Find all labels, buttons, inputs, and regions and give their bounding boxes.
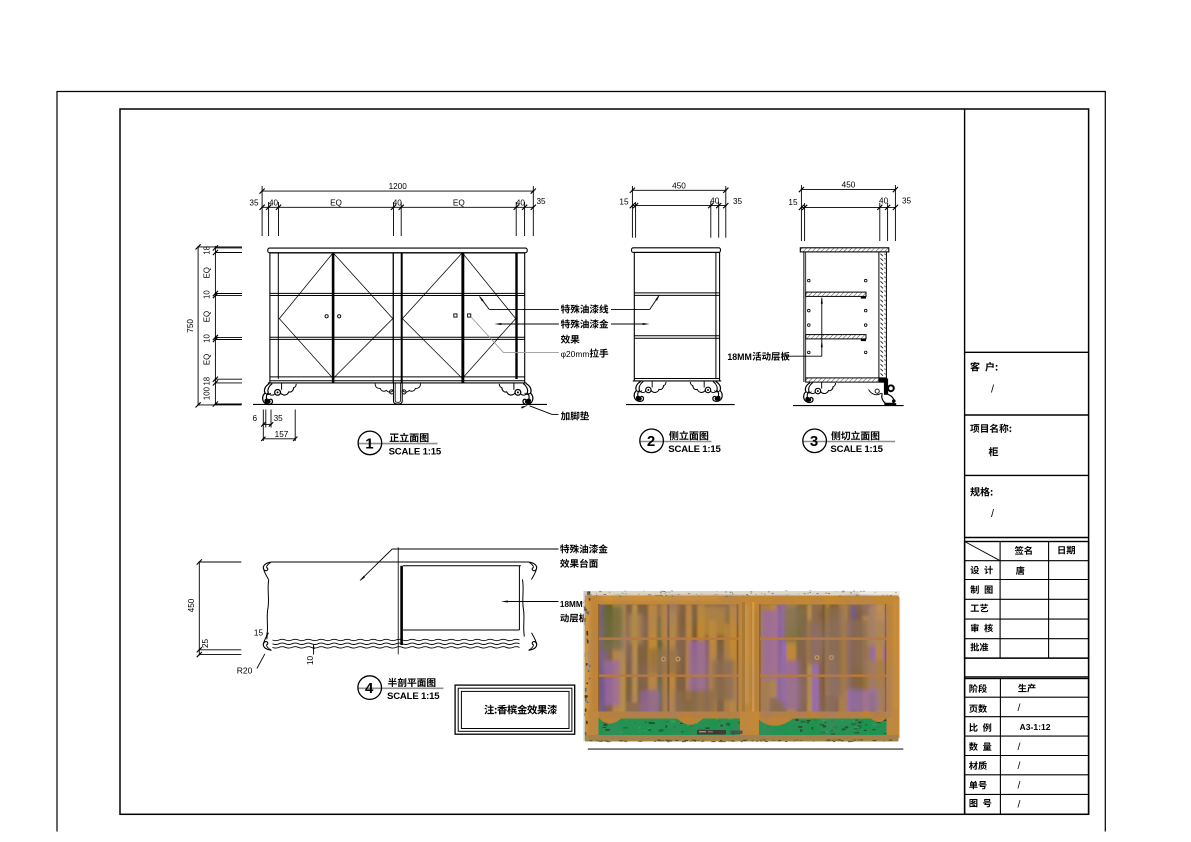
svg-text:18MM: 18MM xyxy=(560,600,583,609)
svg-text:EQ: EQ xyxy=(202,354,211,365)
svg-text:18: 18 xyxy=(202,377,211,386)
svg-text:15: 15 xyxy=(619,197,629,206)
svg-text:450: 450 xyxy=(842,181,856,190)
svg-text:35: 35 xyxy=(733,197,743,206)
svg-text:35: 35 xyxy=(537,197,547,206)
svg-text:EQ: EQ xyxy=(330,198,342,207)
svg-text:10: 10 xyxy=(202,290,211,299)
svg-text:450: 450 xyxy=(672,181,686,190)
svg-text:A3-1:12: A3-1:12 xyxy=(1020,722,1051,732)
svg-text:157: 157 xyxy=(275,430,289,439)
svg-text:18: 18 xyxy=(202,246,211,255)
svg-text:SCALE 1:15: SCALE 1:15 xyxy=(389,446,442,457)
svg-text:2: 2 xyxy=(647,433,655,450)
svg-text:SCALE 1:15: SCALE 1:15 xyxy=(387,691,440,702)
svg-text:/: / xyxy=(1018,780,1021,792)
svg-text:R20: R20 xyxy=(237,666,253,676)
svg-text:/: / xyxy=(1018,760,1021,772)
svg-text:15: 15 xyxy=(788,198,798,207)
svg-text:750: 750 xyxy=(186,319,195,333)
svg-text:EQ: EQ xyxy=(202,267,211,278)
svg-text:/: / xyxy=(1018,741,1021,753)
svg-text:/: / xyxy=(1018,799,1021,811)
svg-text:SCALE 1:15: SCALE 1:15 xyxy=(668,444,721,455)
svg-text:35: 35 xyxy=(274,414,284,423)
svg-text:10: 10 xyxy=(306,656,315,666)
svg-text:25: 25 xyxy=(201,639,210,649)
svg-text:100: 100 xyxy=(202,386,211,400)
svg-text:40: 40 xyxy=(393,198,403,207)
svg-text:35: 35 xyxy=(249,198,259,207)
svg-text:40: 40 xyxy=(269,198,279,207)
svg-text:15: 15 xyxy=(254,629,264,638)
svg-text:18MM: 18MM xyxy=(727,352,751,362)
svg-text:6: 6 xyxy=(252,414,257,423)
svg-text:1: 1 xyxy=(365,435,373,452)
svg-text:φ20mm: φ20mm xyxy=(561,349,590,359)
svg-text:3: 3 xyxy=(810,433,818,450)
svg-text:10: 10 xyxy=(202,334,211,343)
svg-text:/: / xyxy=(1018,702,1021,714)
svg-text:40: 40 xyxy=(516,198,526,207)
svg-text:450: 450 xyxy=(187,598,196,612)
svg-text:1200: 1200 xyxy=(389,182,408,191)
svg-text:35: 35 xyxy=(902,196,912,205)
svg-text:4: 4 xyxy=(365,680,374,697)
svg-text:EQ: EQ xyxy=(453,198,465,207)
svg-text:SCALE 1:15: SCALE 1:15 xyxy=(830,444,883,455)
svg-text:EQ: EQ xyxy=(202,311,211,322)
